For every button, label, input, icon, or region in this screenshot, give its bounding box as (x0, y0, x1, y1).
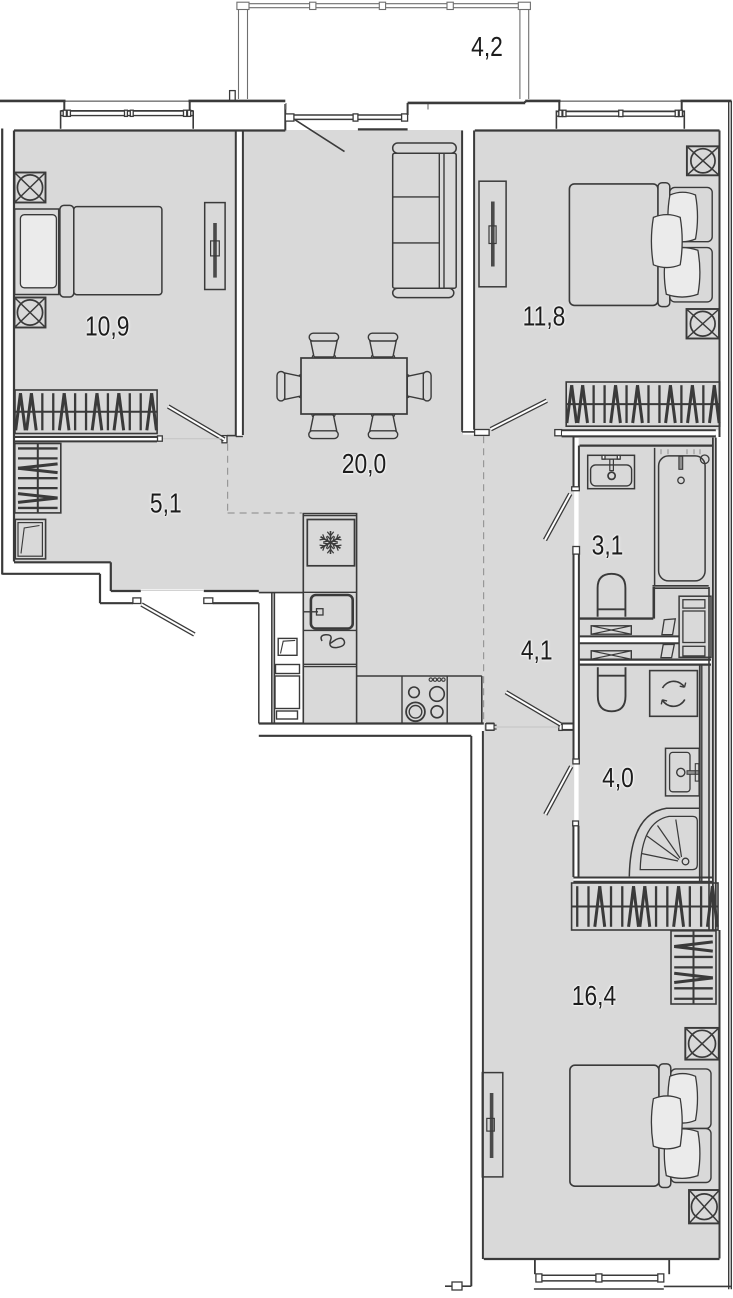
svg-text:4,2: 4,2 (471, 32, 503, 62)
svg-text:4,1: 4,1 (521, 636, 553, 666)
svg-text:4,0: 4,0 (602, 763, 634, 793)
svg-text:5,1: 5,1 (150, 489, 182, 519)
svg-text:11,8: 11,8 (523, 302, 566, 332)
svg-text:16,4: 16,4 (572, 981, 616, 1011)
svg-text:10,9: 10,9 (85, 312, 129, 342)
svg-text:20,0: 20,0 (342, 449, 386, 479)
svg-text:3,1: 3,1 (592, 530, 624, 560)
